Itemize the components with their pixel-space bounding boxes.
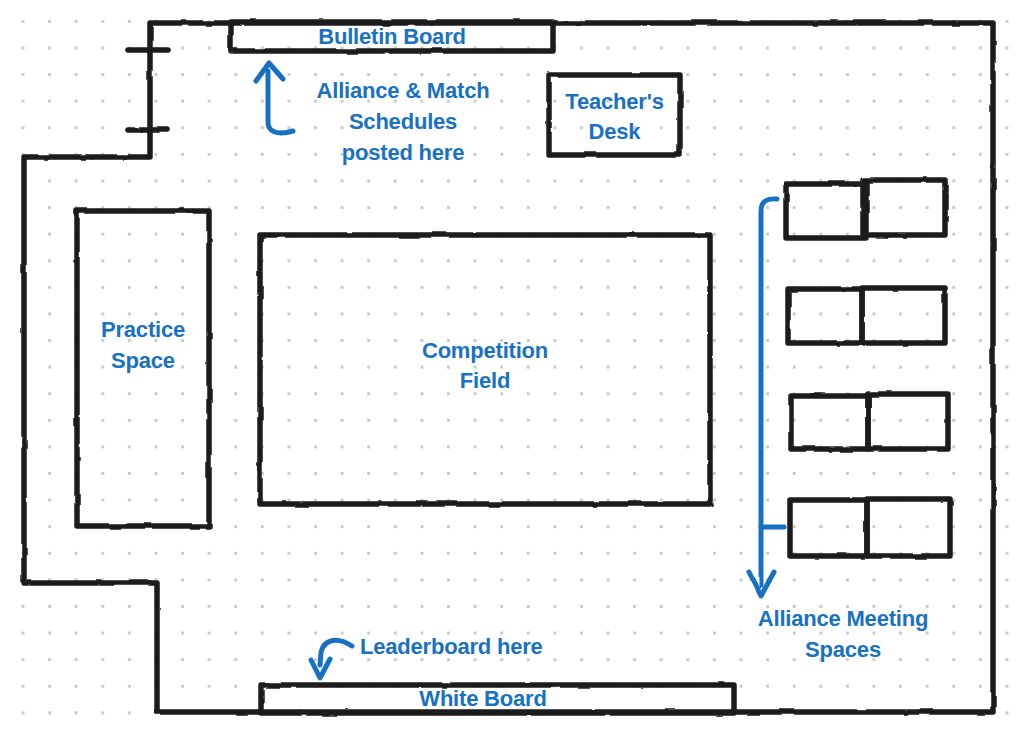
- alliance-spaces-down-arrow-icon: [749, 199, 784, 596]
- alliance-meeting-spaces-label: Alliance Meeting Spaces: [723, 603, 963, 665]
- white-board-label: White Board: [250, 684, 716, 714]
- bulletin-board-label: Bulletin Board: [231, 22, 553, 52]
- schedules-up-arrow-icon: [256, 63, 293, 133]
- alliance-desk-pair1-left: [786, 184, 866, 238]
- alliance-desk-pair3-left: [791, 396, 868, 449]
- competition-field-label: Competition Field: [260, 336, 710, 396]
- teachers-desk-label: Teacher's Desk: [549, 87, 680, 147]
- floor-plan-canvas: Bulletin Board Alliance & Match Schedule…: [0, 0, 1018, 736]
- alliance-desk-pair1-right: [863, 180, 945, 235]
- practice-space-label: Practice Space: [77, 314, 209, 376]
- leaderboard-note-label: Leaderboard here: [360, 632, 600, 662]
- alliance-desk-pair3-right: [868, 394, 948, 449]
- alliance-desk-pair2-left: [788, 289, 862, 343]
- alliance-desk-pair4-right: [867, 499, 950, 556]
- leaderboard-arrow-icon: [311, 640, 352, 678]
- alliance-desk-pair2-right: [862, 288, 945, 343]
- schedules-note-label: Alliance & Match Schedules posted here: [293, 75, 513, 168]
- alliance-desk-pair4-left: [790, 500, 867, 556]
